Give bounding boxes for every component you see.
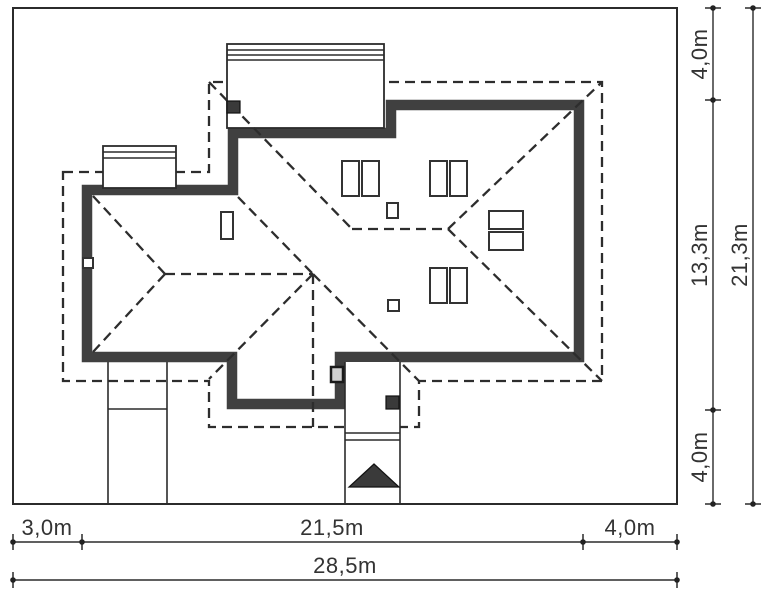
chimney-entrance (386, 396, 399, 409)
chimney (227, 101, 240, 113)
dim-label-3-0m: 3,0m (22, 515, 73, 540)
dim-label-4-0m-right-bottom: 4,0m (687, 432, 712, 483)
wall-vent (83, 258, 93, 268)
dimension-bottom-segments: 3,0m 21,5m 4,0m (10, 515, 680, 550)
dim-label-28-5m: 28,5m (313, 553, 377, 578)
dimension-bottom-total: 28,5m (10, 553, 680, 588)
dim-label-13-3m: 13,3m (687, 223, 712, 287)
side-door (331, 367, 343, 382)
dim-label-4-0m-right-top: 4,0m (687, 29, 712, 80)
roof-vent-square (388, 300, 399, 311)
roof-window-narrow (221, 212, 233, 239)
site-plan-page: 3,0m 21,5m 4,0m 28,5m 4,0m 13,3m 4,0m 21… (0, 0, 770, 597)
entrance-path (345, 362, 400, 503)
dimension-right-total: 21,3m (727, 5, 761, 507)
dim-label-4-0m-bottom: 4,0m (605, 515, 656, 540)
roof-vent-small (387, 203, 398, 218)
garage-apron (227, 44, 384, 128)
site-plan-drawing: 3,0m 21,5m 4,0m 28,5m 4,0m 13,3m 4,0m 21… (0, 0, 770, 597)
dimension-right-segments: 4,0m 13,3m 4,0m (687, 5, 721, 507)
dim-label-21-5m: 21,5m (300, 515, 364, 540)
dim-label-21-3m: 21,3m (727, 223, 752, 287)
side-terrace-steps (103, 146, 176, 188)
